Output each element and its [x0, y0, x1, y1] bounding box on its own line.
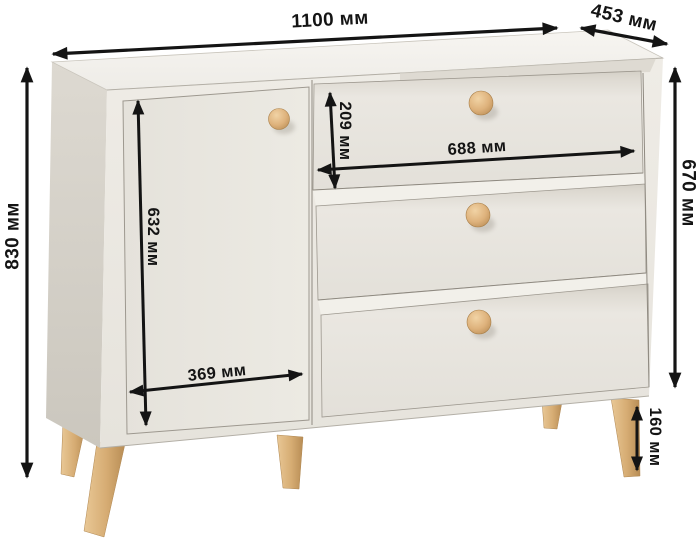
drawer-top [313, 71, 643, 190]
dim-leg-height: 160 мм [637, 407, 664, 470]
dim-body-height: 670 мм [675, 68, 699, 387]
leg-middle [277, 435, 303, 489]
dim-total-height-label: 830 мм [3, 202, 24, 270]
cabinet-left-side [46, 62, 107, 448]
dim-body-height-label: 670 мм [678, 159, 699, 227]
drawer-top-knob [469, 91, 493, 115]
door-knob [269, 109, 290, 130]
drawer-middle-knob [466, 203, 490, 227]
dim-total-height: 830 мм [3, 68, 28, 477]
dim-drawer-height-label: 209 мм [336, 102, 354, 161]
furniture-dimension-diagram: 1100 мм 453 мм 830 мм 670 мм 632 мм 369 … [0, 0, 700, 540]
drawer-bottom-knob [467, 310, 491, 334]
diagram-canvas: 1100 мм 453 мм 830 мм 670 мм 632 мм 369 … [0, 0, 700, 540]
dim-leg-height-label: 160 мм [646, 408, 664, 467]
dim-door-height-label: 632 мм [144, 208, 162, 267]
leg-front-left [84, 442, 125, 537]
dim-total-width-label: 1100 мм [291, 7, 369, 32]
